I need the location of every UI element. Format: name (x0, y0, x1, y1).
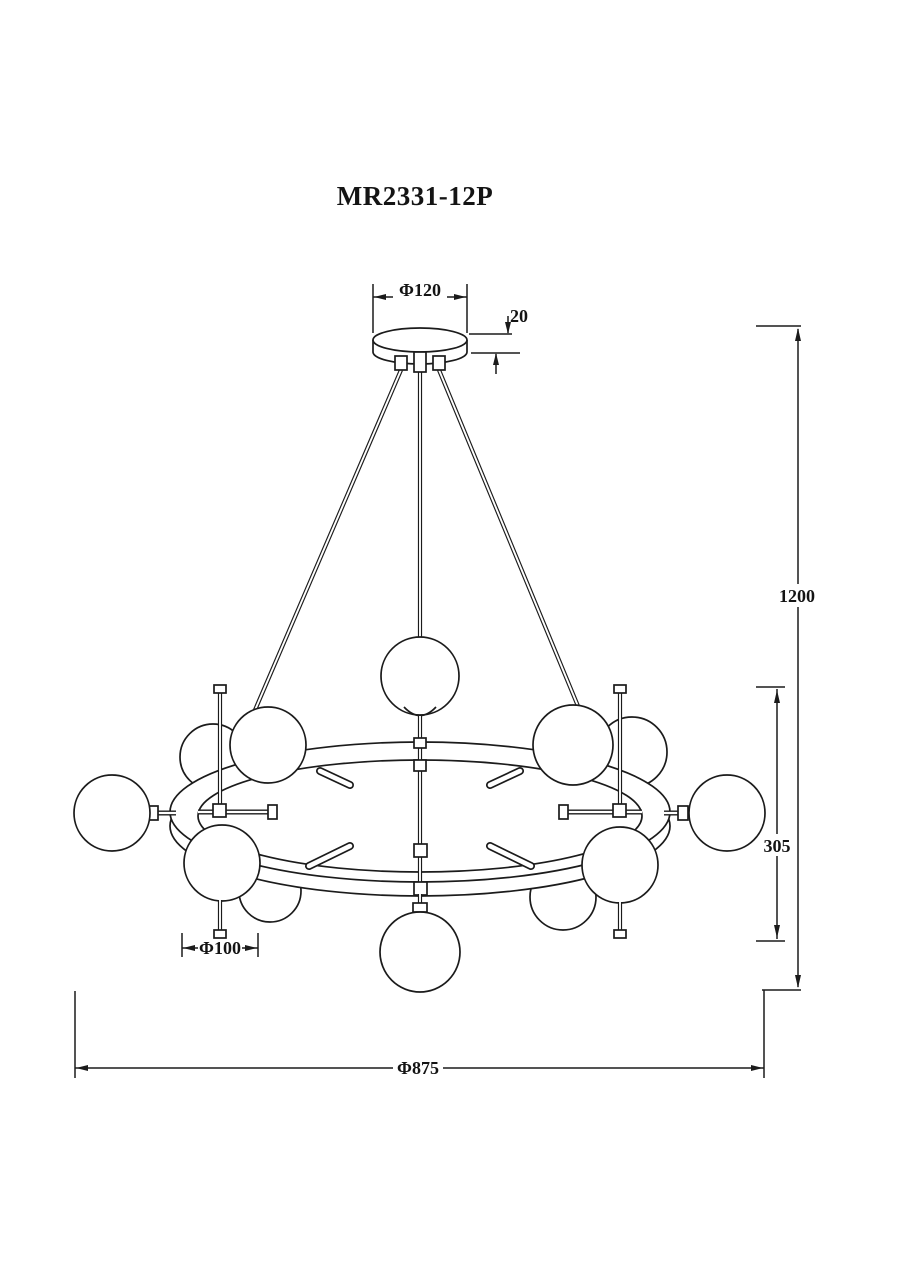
dimension-label-overall-diameter: Φ875 (397, 1058, 439, 1078)
dimension-label-canopy-height: 20 (510, 306, 528, 326)
globe-top-assembly (381, 637, 459, 748)
canopy-connector-right (433, 356, 445, 370)
globe-bottom (380, 912, 460, 992)
canopy (373, 328, 467, 372)
chandelier-drawing (74, 328, 765, 992)
globe-far-left-arm (74, 775, 176, 851)
canopy-connector-left (395, 356, 407, 370)
globe-bottom-assembly (380, 894, 460, 992)
dimension-canopy-diameter: Φ120 (373, 280, 467, 333)
dimension-suspension-height: 1200 (756, 326, 817, 990)
globe-top (381, 637, 459, 715)
technical-drawing: MR2331-12P (0, 0, 904, 1280)
model-number: MR2331-12P (337, 181, 493, 211)
globe-far-right (689, 775, 765, 851)
globe-lower-left (184, 825, 260, 901)
dimension-label-canopy-diameter: Φ120 (399, 280, 441, 300)
dimension-overall-diameter: Φ875 (75, 990, 764, 1078)
globe-far-right-arm (664, 775, 765, 851)
globe-far-left (74, 775, 150, 851)
dimension-label-suspension-height: 1200 (779, 586, 815, 606)
globe-upper-left (230, 707, 306, 783)
dimension-canopy-height: 20 (469, 306, 528, 374)
dimension-label-globe-diameter: Φ100 (199, 938, 241, 958)
canopy-connector-center (414, 352, 426, 372)
globe-lower-right (582, 827, 658, 903)
globe-upper-right (533, 705, 613, 785)
dimension-label-body-height: 305 (764, 836, 791, 856)
drawing-page: MR2331-12P (0, 0, 904, 1280)
